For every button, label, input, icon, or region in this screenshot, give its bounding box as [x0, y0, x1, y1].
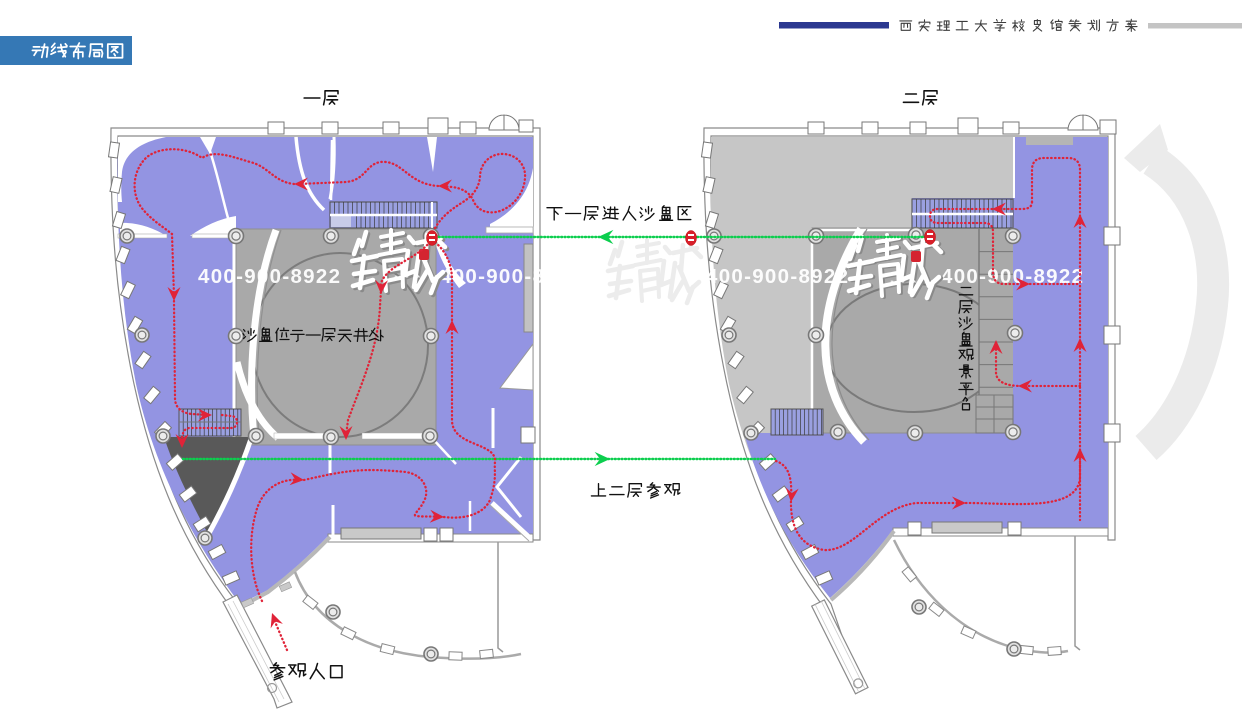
svg-text:400-900-8922: 400-900-8922	[941, 265, 1084, 288]
svg-text:* * * *: * * * *	[383, 274, 423, 283]
svg-text:400-900-8922: 400-900-8922	[198, 265, 341, 288]
svg-text:* * * *: * * * *	[879, 279, 919, 288]
svg-text:400-900-8922: 400-900-8922	[440, 265, 583, 288]
svg-text:400-900-8922: 400-900-8922	[706, 265, 849, 288]
